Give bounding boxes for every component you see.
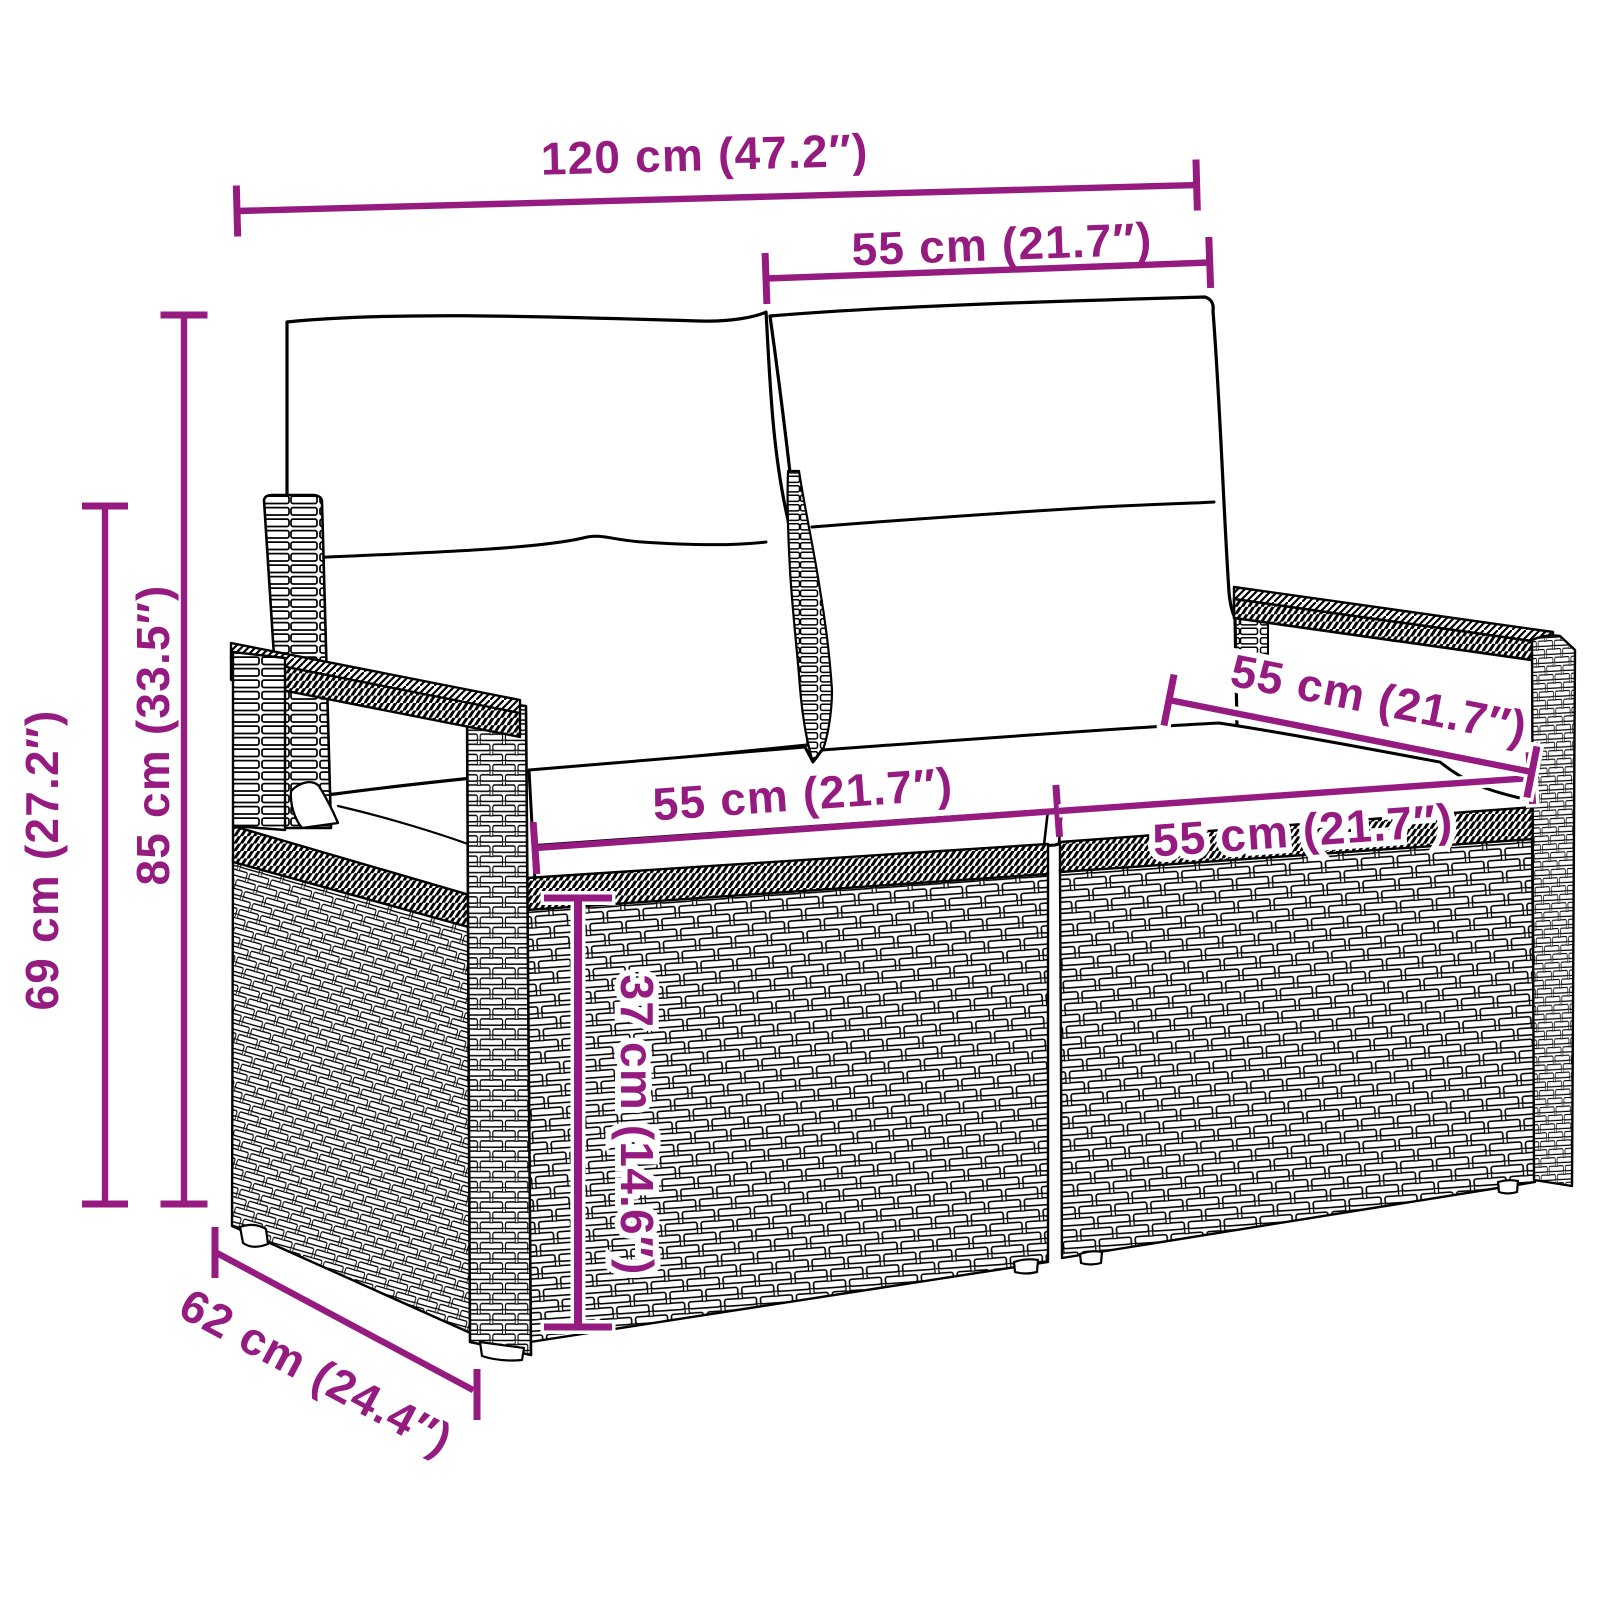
svg-text:69 cm (27.2″): 69 cm (27.2″) — [16, 709, 68, 1010]
svg-text:55 cm (21.7″): 55 cm (21.7″) — [851, 213, 1154, 276]
svg-text:85 cm (33.5″): 85 cm (33.5″) — [127, 584, 179, 885]
svg-text:120 cm (47.2″): 120 cm (47.2″) — [540, 124, 869, 185]
svg-text:37 cm (14.6″): 37 cm (14.6″) — [611, 974, 663, 1275]
